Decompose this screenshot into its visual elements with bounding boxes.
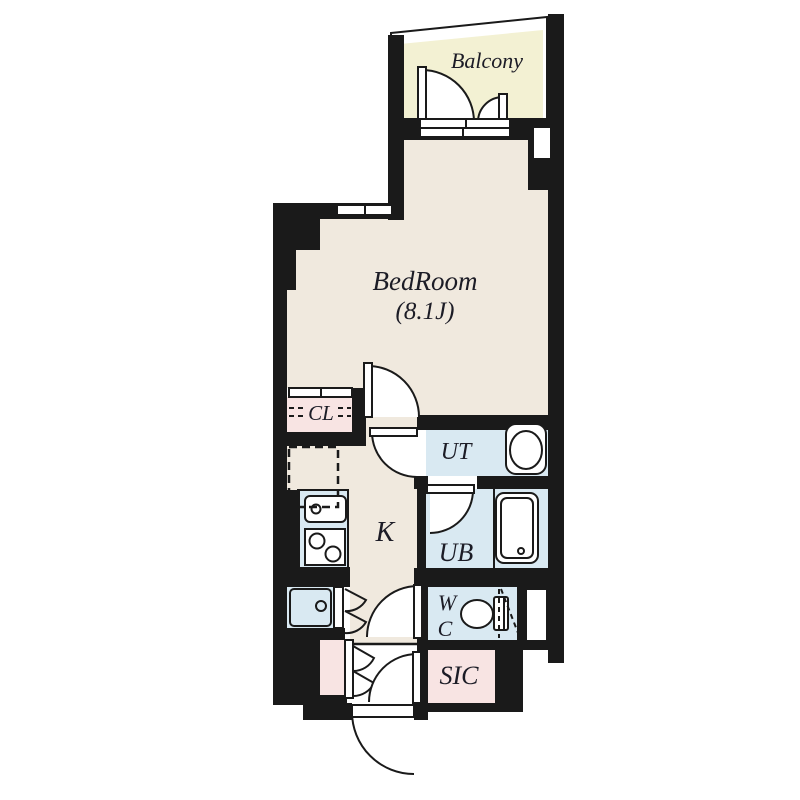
closet-label: CL: [308, 401, 334, 425]
washbasin-icon: [506, 424, 546, 474]
bedroom-side-window: [337, 205, 392, 215]
pipe-space-slot-wc: [527, 590, 546, 640]
entry-closet-frame: [345, 640, 353, 698]
toilet-label-line1: W: [438, 590, 458, 615]
shoe-closet-label: SIC: [440, 661, 480, 690]
washing-machine-pan-icon: [290, 589, 331, 626]
laundry-closet-frame: [334, 587, 343, 628]
kitchen-sink-icon: [305, 496, 346, 522]
bedroom-size-label: (8.1J): [396, 298, 455, 325]
bedroom-label: BedRoom: [373, 266, 478, 296]
bathtub-icon: [494, 489, 538, 568]
balcony-window: [420, 119, 510, 137]
closet-sliding-doors: [289, 388, 352, 397]
bath-label: UB: [439, 538, 474, 567]
entrance-door-swing-icon: [352, 705, 414, 774]
toilet-label-line2: C: [438, 616, 453, 641]
kitchen-label: K: [375, 517, 396, 548]
entry-closet-floor: [320, 638, 345, 698]
stove-icon: [305, 529, 345, 565]
balcony-label: Balcony: [451, 48, 523, 73]
floor-plan: Balcony BedRoom (8.1J) CL UT K UB W C SI…: [0, 0, 800, 800]
pipe-space-slot-top: [534, 128, 550, 158]
utility-label: UT: [441, 439, 473, 465]
